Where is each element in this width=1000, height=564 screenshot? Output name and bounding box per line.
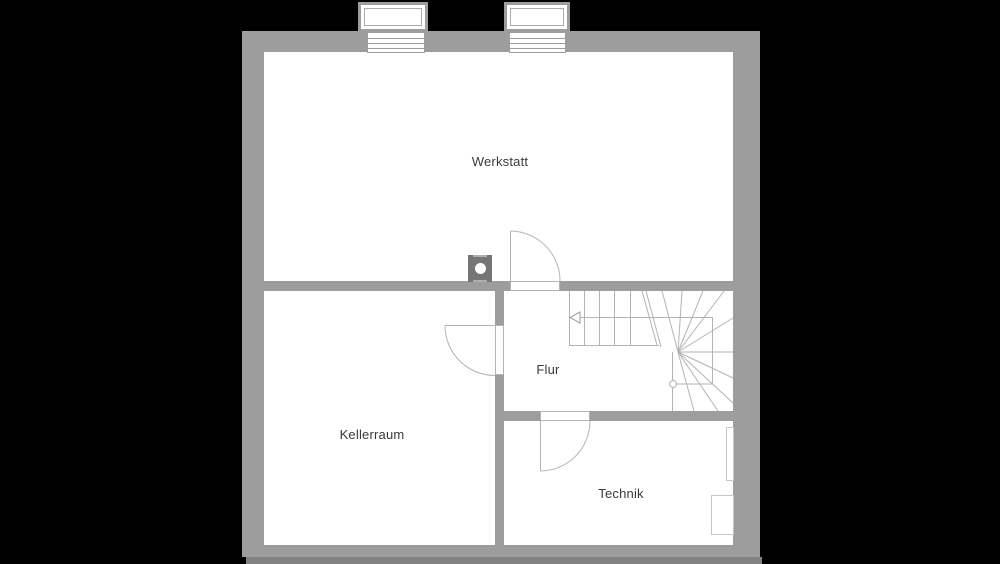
room-label-flur: Flur (493, 362, 603, 377)
lightwell-right (504, 2, 570, 32)
ground-shadow-line (246, 557, 762, 564)
door-opening-technik (540, 411, 590, 421)
room-label-kellerraum: Kellerraum (317, 427, 427, 442)
lightwell-left (358, 2, 428, 32)
room-technik (504, 421, 733, 545)
room-label-werkstatt: Werkstatt (445, 154, 555, 169)
lightwell-right-inner-rim (510, 8, 564, 26)
room-kellerraum (264, 291, 495, 545)
lightwell-left-inner-rim (364, 8, 422, 26)
chimney-flue-circle (475, 263, 486, 274)
technik-wall-unit (726, 427, 734, 481)
window-icon-left (367, 32, 425, 53)
window-icon-right (509, 32, 566, 53)
room-label-technik: Technik (566, 486, 676, 501)
floor-plan-canvas: Werkstatt Kellerraum Flur Technik (0, 0, 1000, 564)
door-opening-werkstatt (510, 281, 560, 291)
technik-floor-unit (711, 495, 734, 535)
room-flur (504, 291, 733, 411)
chimney-icon (468, 255, 492, 282)
chimney-tick-top (473, 255, 487, 257)
chimney-tick-bottom (473, 280, 487, 282)
